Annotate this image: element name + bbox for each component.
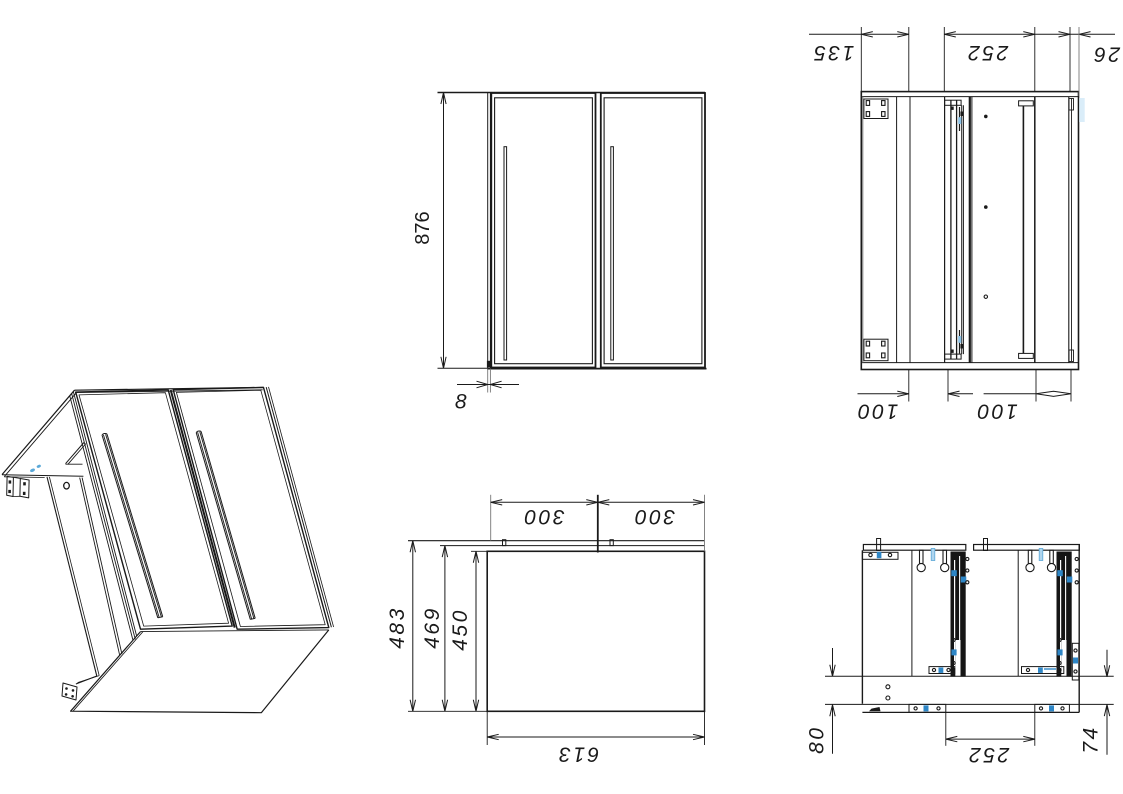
svg-text:100: 100	[856, 400, 899, 423]
svg-text:252: 252	[967, 743, 1011, 766]
svg-text:876: 876	[412, 211, 434, 244]
svg-text:135: 135	[812, 41, 855, 64]
svg-text:8: 8	[455, 391, 469, 414]
svg-text:300: 300	[633, 505, 676, 528]
svg-text:450: 450	[449, 608, 472, 651]
svg-text:469: 469	[421, 606, 444, 649]
svg-text:483: 483	[386, 606, 409, 649]
svg-text:26: 26	[1092, 43, 1121, 66]
svg-text:100: 100	[975, 400, 1018, 423]
svg-text:300: 300	[522, 505, 565, 528]
svg-text:74: 74	[1080, 725, 1103, 753]
svg-text:80: 80	[806, 726, 829, 754]
svg-text:613: 613	[557, 743, 600, 766]
svg-text:252: 252	[966, 41, 1010, 64]
